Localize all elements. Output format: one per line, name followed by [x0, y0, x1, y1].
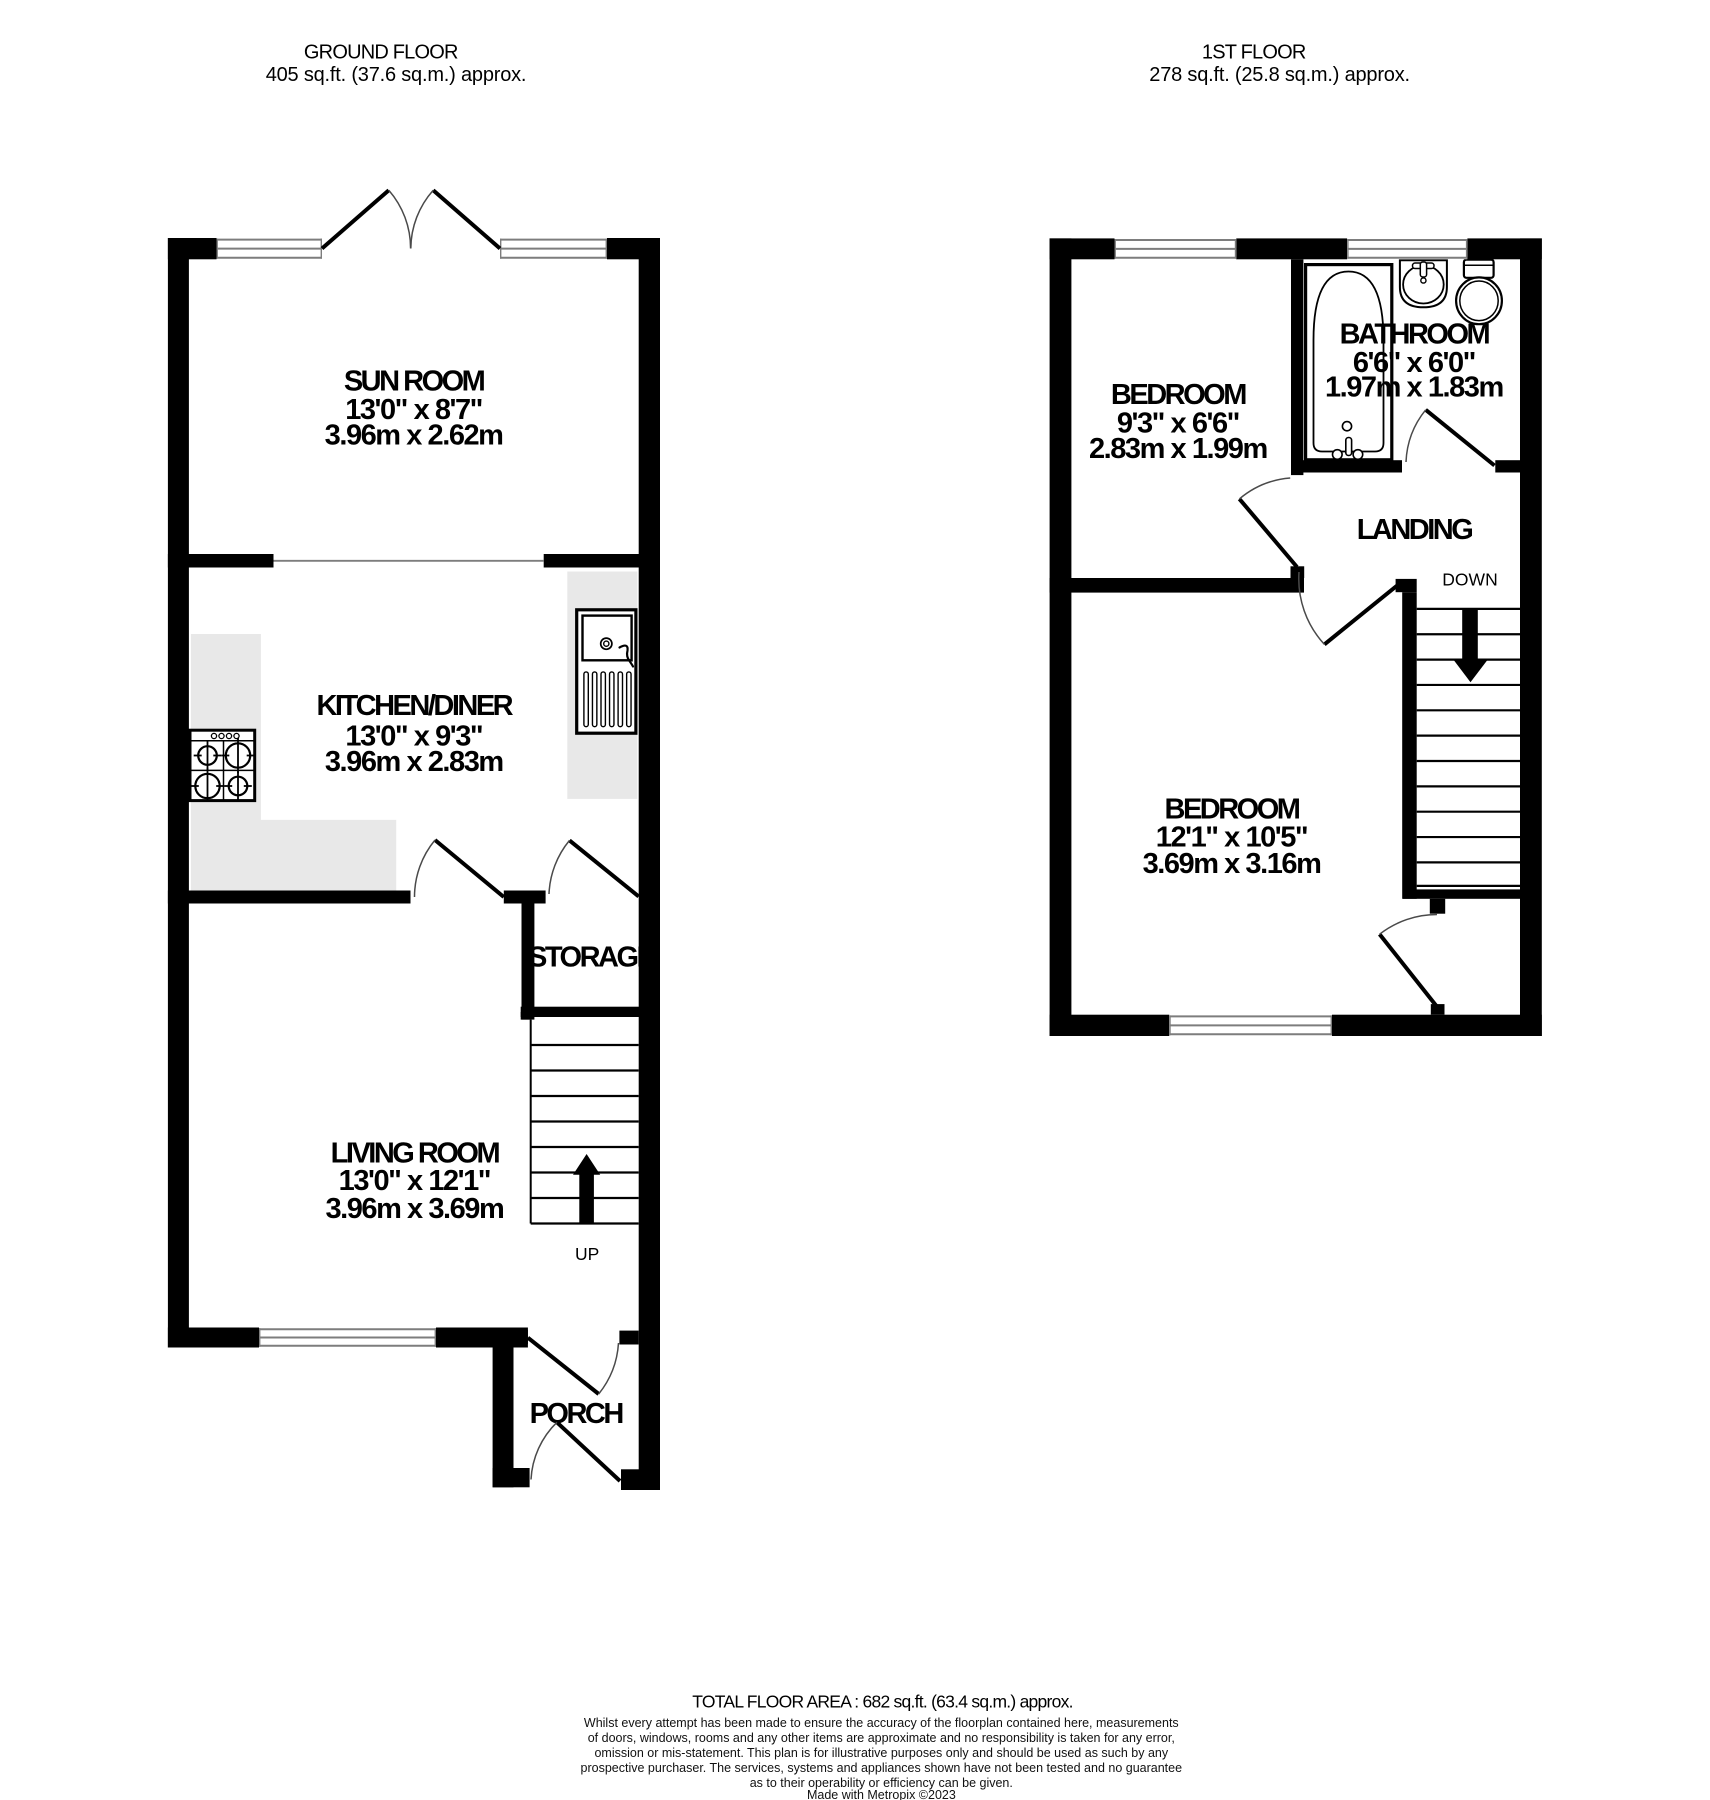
svg-text:DOWN: DOWN	[1442, 570, 1497, 590]
svg-text:1.97m x 1.83m: 1.97m x 1.83m	[1325, 372, 1503, 404]
svg-text:Made with Metropix ©2023: Made with Metropix ©2023	[807, 1788, 956, 1800]
svg-text:UP: UP	[575, 1244, 599, 1264]
svg-text:3.96m x 2.62m: 3.96m x 2.62m	[325, 419, 503, 451]
svg-text:omission or mis-statement. Thi: omission or mis-statement. This plan is …	[594, 1746, 1168, 1760]
svg-text:of doors, windows, rooms and a: of doors, windows, rooms and any other i…	[588, 1731, 1175, 1745]
svg-text:SUN ROOM: SUN ROOM	[344, 366, 485, 398]
svg-text:BATHROOM: BATHROOM	[1340, 318, 1490, 350]
svg-text:LANDING: LANDING	[1357, 514, 1473, 546]
svg-text:Whilst every attempt has been: Whilst every attempt has been made to en…	[584, 1716, 1179, 1730]
svg-text:GROUND FLOOR: GROUND FLOOR	[304, 42, 458, 64]
svg-text:prospective purchaser. The ser: prospective purchaser. The services, sys…	[581, 1761, 1183, 1775]
svg-text:278 sq.ft. (25.8 sq.m.) approx: 278 sq.ft. (25.8 sq.m.) approx.	[1149, 64, 1410, 86]
svg-text:PORCH: PORCH	[530, 1398, 623, 1430]
svg-text:3.96m x 3.69m: 3.96m x 3.69m	[325, 1193, 503, 1225]
svg-text:BEDROOM: BEDROOM	[1111, 379, 1246, 411]
svg-text:2.83m x 1.99m: 2.83m x 1.99m	[1089, 433, 1267, 465]
svg-text:3.69m x 3.16m: 3.69m x 3.16m	[1143, 848, 1321, 880]
svg-text:1ST FLOOR: 1ST FLOOR	[1202, 42, 1306, 64]
svg-text:KITCHEN/DINER: KITCHEN/DINER	[316, 690, 513, 722]
svg-text:BEDROOM: BEDROOM	[1165, 793, 1300, 825]
svg-text:3.96m x 2.83m: 3.96m x 2.83m	[325, 746, 503, 778]
svg-text:TOTAL FLOOR AREA : 682 sq.ft.: TOTAL FLOOR AREA : 682 sq.ft. (63.4 sq.m…	[692, 1692, 1072, 1712]
svg-text:405 sq.ft. (37.6 sq.m.) approx: 405 sq.ft. (37.6 sq.m.) approx.	[266, 64, 527, 86]
svg-text:STORAGE: STORAGE	[528, 942, 656, 974]
